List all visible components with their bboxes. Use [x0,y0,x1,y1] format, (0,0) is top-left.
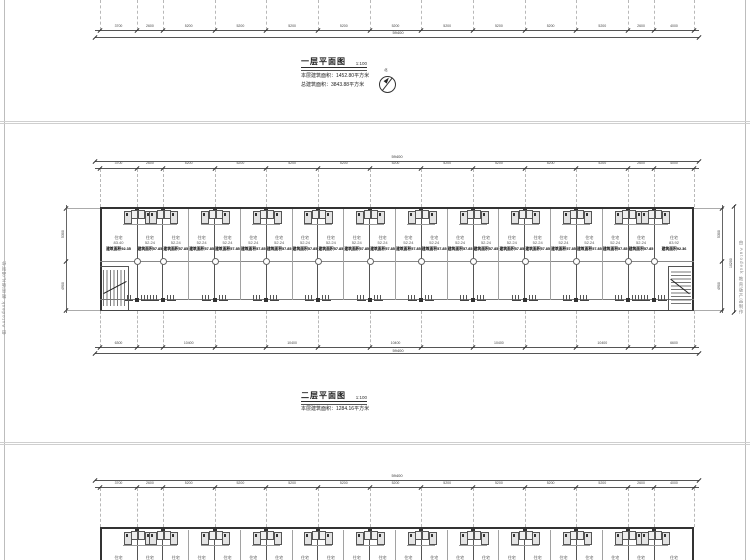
unit-area-label: 52.24 [266,241,292,245]
sink-fixture-icon [519,210,526,219]
dim-tick [697,35,702,40]
dim-text: 59400 [380,155,414,159]
dim-text: 10400 [595,342,609,346]
unit-type-label: 住宅 [602,236,628,240]
unit-type-label: 住宅 [421,236,447,240]
grid-extension-line [473,488,474,527]
sink-fixture-icon [422,210,429,219]
sink-fixture-icon [364,210,371,219]
unit-built-label: 建筑面积57.85 [446,248,474,252]
unit-area-label: 52.24 [292,241,318,245]
sink-fixture-icon [415,531,422,540]
dim-text: 5200 [595,162,609,166]
toilet-tank-mark [203,534,205,537]
dim-ext [66,208,100,209]
door-symbol [219,295,228,301]
unit-built-label: 建筑面积57.85 [627,248,655,252]
unit-area-label: 52.24 [318,241,344,245]
sink-fixture-icon [570,210,577,219]
unit-partition [292,209,293,300]
dim-text: 10400 [182,342,196,346]
grid-extension-line [628,311,629,347]
stair-wall [128,266,129,310]
grid-extension-line [137,0,138,30]
grid-extension-line [525,0,526,30]
dim-text: 10400 [389,342,403,346]
toilet-tank-mark [431,213,433,216]
unit-partition [602,209,603,300]
toilet-tank-mark [462,534,464,537]
column-marker [471,527,475,531]
column-marker [574,527,578,531]
grid-extension-line [318,488,319,527]
grid-extension-line [100,169,101,207]
bathroom-wall [562,545,590,546]
dim-text: 3700 [112,482,126,486]
dim-text: 5200 [285,482,299,486]
column-marker [652,527,656,531]
sink-fixture-icon [138,210,145,219]
unit-partition [498,209,499,300]
unit-type-label: 住宅 [473,236,499,240]
sink-fixture-icon [467,210,474,219]
door-symbol [253,295,262,301]
unit-type-label: 住宅 [576,236,602,240]
dim-text: 5200 [492,482,506,486]
bathroom-wall [407,224,435,225]
grid-extension-line [215,0,216,30]
dim-text: 5200 [337,482,351,486]
unit-type-label: 住宅 [266,556,292,560]
toilet-tank-mark [643,213,645,216]
grid-extension-line [654,488,655,527]
toilet-tank-mark [224,213,226,216]
grid-extension-line [100,488,101,527]
door-symbol [202,295,211,301]
column-circle [573,258,580,265]
sink-fixture-icon [519,531,526,540]
toilet-tank-mark [410,213,412,216]
wall-left [100,207,102,311]
grid-extension-line [421,169,422,207]
sink-fixture-icon [371,531,378,540]
toilet-tank-mark [358,213,360,216]
unit-built-label: 建筑面积57.85 [394,248,422,252]
unit-built-label: 建筑面积57.85 [188,248,216,252]
sink-fixture-icon [655,531,662,540]
dim-text: 2600 [634,162,648,166]
dim-text: 5200 [389,25,403,29]
door-symbol [615,295,624,301]
grid-extension-line [576,488,577,527]
dim-text: 5200 [233,25,247,29]
unit-type-label: 住宅 [602,556,628,560]
door-symbol [641,295,650,301]
sheet1-area-line1: 本层建筑面积：1452.80平方米 [301,74,369,79]
dim-tick [697,478,702,483]
sink-fixture-icon [577,531,584,540]
bathroom-wall [459,224,487,225]
column-circle [470,258,477,265]
column-marker [652,298,656,302]
grid-extension-line [370,169,371,207]
unit-partition [188,209,189,300]
dim-text: 5200 [492,162,506,166]
unit-type-label: 住宅 [395,236,421,240]
dim-text: 5200 [595,25,609,29]
toilet-tank-mark [379,213,381,216]
toilet-tank-mark [306,534,308,537]
toilet-tank-mark [255,534,257,537]
unit-partition [654,209,655,300]
unit-type-label: 住宅 [240,556,266,560]
dim-text: 2600 [634,25,648,29]
wall-right [692,207,694,311]
sink-fixture-icon [622,210,629,219]
unit-built-label: 建筑面积57.85 [343,248,371,252]
unit-type-label: 住宅 [447,236,473,240]
unit-type-label: 住宅 [628,236,654,240]
door-symbol [270,295,279,301]
door-symbol [167,295,176,301]
grid-extension-line [694,0,695,30]
column-circle [625,258,632,265]
grid-extension-line [100,311,101,347]
grid-extension-line [163,488,164,527]
unit-type-label: 住宅 [344,236,370,240]
sheet1-scale: 1:100 [356,62,367,67]
sink-fixture-icon [422,531,429,540]
dim-text: 6600 [667,342,681,346]
column-marker [368,527,372,531]
unit-type-label: 住宅 [214,236,240,240]
bathroom-wall [459,545,487,546]
unit-area-label: 52.24 [370,241,396,245]
grid-extension-line [473,311,474,347]
grid-extension-line [266,169,267,207]
column-marker [626,527,630,531]
sink-fixture-icon [164,531,171,540]
unit-area-label: 52.24 [551,241,577,245]
grid-extension-line [473,0,474,30]
dim-text: 5200 [233,482,247,486]
sink-fixture-icon [157,210,164,219]
column-marker [471,298,475,302]
sheet2-title: 二层平面图 [301,392,346,400]
toilet-tank-mark [255,213,257,216]
column-marker [419,298,423,302]
unit-type-label: 住宅 [189,236,215,240]
column-circle [367,258,374,265]
stair-wall [668,266,692,267]
column-marker [135,527,139,531]
grid-extension-line [266,311,267,347]
toilet-tank-mark [638,534,640,537]
unit-built-label: 建筑面积57.85 [291,248,319,252]
unit-partition [369,209,370,300]
sink-fixture-icon [164,210,171,219]
dim-text: 5200 [182,25,196,29]
sink-fixture-icon [312,210,319,219]
sink-fixture-icon [629,210,636,219]
unit-built-label: 建筑面积57.85 [550,248,578,252]
unit-type-label: 住宅 [551,556,577,560]
unit-type-label: 住宅 [499,556,525,560]
bathroom-wall [201,545,229,546]
dim-text: 5200 [389,162,403,166]
unit-area-label: 52.24 [525,241,551,245]
unit-type-label: 住宅 [551,236,577,240]
column-circle [134,258,141,265]
grid-extension-line [266,488,267,527]
sheet1-title: 一层平面图 [301,58,346,66]
dim-text: 5200 [440,25,454,29]
unit-type-label: 住宅 [370,236,396,240]
dim-line [734,205,735,313]
dim-text: 5200 [544,162,558,166]
toilet-tank-mark [358,534,360,537]
grid-extension-line [654,169,655,207]
dim-line [95,37,699,38]
bathroom-wall [304,545,332,546]
grid-extension-line [576,169,577,207]
column-circle [263,258,270,265]
dim-text: 5200 [285,25,299,29]
unit-built-label: 建筑面积57.85 [136,248,164,252]
unit-built-label: 建筑面积57.85 [472,248,500,252]
grid-extension-line [628,488,629,527]
grid-extension-line [654,0,655,30]
unit-area-label: 52.24 [421,241,447,245]
toilet-tank-mark [147,534,149,537]
toilet-tank-mark [534,213,536,216]
sink-fixture-icon [138,531,145,540]
dim-text: 4900 [62,282,66,290]
sink-fixture-icon [570,531,577,540]
dim-text: 2600 [634,482,648,486]
grid-extension-line [525,488,526,527]
unit-partition [447,209,448,300]
unit-type-label: 住宅 [318,556,344,560]
dim-text: 3700 [112,25,126,29]
grid-extension-line [163,169,164,207]
toilet-tank-mark [276,534,278,537]
unit-area-label: 52.24 [628,241,654,245]
bathroom-wall [640,224,668,225]
dim-text: 5200 [595,482,609,486]
column-circle [651,258,658,265]
sheet2-title-underline [301,404,367,405]
unit-type-label: 住宅 [661,556,687,560]
door-symbol [563,295,572,301]
door-symbol [408,295,417,301]
column-marker [161,527,165,531]
door-symbol [305,295,314,301]
grid-extension-line [215,311,216,347]
sink-fixture-icon [267,210,274,219]
column-circle [160,258,167,265]
unit-partition [576,209,577,300]
unit-type-label: 住宅 [189,556,215,560]
sink-fixture-icon [629,531,636,540]
bathroom-wall [149,545,177,546]
unit-built-label: 建筑面积92.35 [105,248,133,252]
unit-built-label: 建筑面积57.85 [575,248,603,252]
door-symbol [357,295,366,301]
bathroom-wall [201,224,229,225]
unit-built-label: 建筑面积57.85 [317,248,345,252]
dim-text: 5200 [492,25,506,29]
toilet-tank-mark [224,534,226,537]
unit-partition [550,209,551,300]
dim-text: 5200 [389,482,403,486]
dim-text: 6300 [112,342,126,346]
dim-line [95,353,699,354]
toilet-tank-mark [483,534,485,537]
bathroom-wall [149,224,177,225]
column-marker [264,527,268,531]
unit-partition [162,209,163,300]
unit-partition [395,209,396,300]
dim-text: 2600 [143,25,157,29]
unit-area-label: 83.40 [106,241,132,245]
unit-type-label: 住宅 [240,236,266,240]
door-symbol [150,295,159,301]
unit-built-label: 建筑面积57.85 [498,248,526,252]
grid-extension-line [137,488,138,527]
column-marker [523,527,527,531]
toilet-tank-mark [327,213,329,216]
sink-fixture-icon [371,210,378,219]
grid-extension-line [163,0,164,30]
sink-fixture-icon [267,531,274,540]
unit-type-label: 住宅 [525,236,551,240]
plan-drawing-layer: 3700260052005200520052005200520052005200… [0,0,750,560]
unit-built-label: 建筑面积57.85 [265,248,293,252]
grid-extension-line [421,0,422,30]
unit-partition [240,209,241,300]
unit-type-label: 住宅 [163,236,189,240]
stair-wall [100,266,128,267]
column-marker [626,298,630,302]
grid-extension-line [137,311,138,347]
column-circle [315,258,322,265]
unit-built-label: 建筑面积57.85 [162,248,190,252]
dim-text: 5200 [337,25,351,29]
sink-fixture-icon [216,210,223,219]
sheet2-area-line1: 本层建筑面积：1284.16平方米 [301,407,369,412]
sink-fixture-icon [577,210,584,219]
unit-area-label: 52.24 [602,241,628,245]
door-symbol [460,295,469,301]
unit-type-label: 住宅 [473,556,499,560]
stair-wall [668,266,669,310]
sink-fixture-icon [467,531,474,540]
grid-extension-line [421,311,422,347]
sink-fixture-icon [260,531,267,540]
toilet-tank-mark [151,213,153,216]
unit-type-label: 住宅 [266,236,292,240]
sink-fixture-icon [260,210,267,219]
unit-area-label: 52.24 [473,241,499,245]
unit-partition [343,209,344,300]
unit-area-label: 52.24 [214,241,240,245]
unit-built-label: 建筑面积92.36 [660,248,688,252]
grid-extension-line [421,488,422,527]
unit-area-label: 52.24 [240,241,266,245]
toilet-tank-mark [151,534,153,537]
unit-built-label: 建筑面积57.85 [239,248,267,252]
dim-text: 59400 [380,474,414,478]
dim-text: 5200 [440,482,454,486]
dim-text: 5200 [182,162,196,166]
sink-fixture-icon [364,531,371,540]
wall-top [100,527,694,529]
grid-extension-line [266,0,267,30]
bathroom-wall [123,545,151,546]
sheet2-title-block: 二层平面图 1:100 [301,390,367,402]
toilet-tank-mark [276,213,278,216]
column-marker [161,298,165,302]
sink-fixture-icon [131,531,138,540]
bathroom-wall [562,224,590,225]
unit-area-label: 52.24 [344,241,370,245]
bathroom-wall [511,224,539,225]
column-marker [135,298,139,302]
unit-area-label: 52.24 [137,241,163,245]
dim-tick [697,351,702,356]
dim-text: 10400 [492,342,506,346]
grid-extension-line [694,488,695,527]
grid-extension-line [318,0,319,30]
toilet-tank-mark [379,534,381,537]
grid-extension-line [654,311,655,347]
unit-type-label: 住宅 [163,556,189,560]
toilet-tank-mark [586,534,588,537]
unit-partition [473,209,474,300]
grid-extension-line [576,311,577,347]
toilet-tank-mark [586,213,588,216]
toilet-tank-mark [172,534,174,537]
sink-fixture-icon [209,531,216,540]
toilet-tank-mark [306,213,308,216]
sink-fixture-icon [526,531,533,540]
column-circle [418,258,425,265]
unit-type-label: 住宅 [214,556,240,560]
sink-fixture-icon [622,531,629,540]
column-circle [522,258,529,265]
bathroom-wall [252,545,280,546]
unit-area-label: 52.24 [189,241,215,245]
unit-partition [137,209,138,300]
sink-fixture-icon [319,210,326,219]
dim-text: 10400 [285,342,299,346]
bathroom-wall [614,545,642,546]
unit-built-label: 建筑面积57.85 [601,248,629,252]
toilet-tank-mark [126,213,128,216]
unit-area-label: 52.24 [447,241,473,245]
column-marker [316,298,320,302]
north-label: 北 [384,69,388,73]
sink-fixture-icon [474,531,481,540]
unit-type-label: 住宅 [447,556,473,560]
dim-text: 2600 [143,162,157,166]
grid-extension-line [694,169,695,207]
dim-text: 5200 [544,482,558,486]
grid-extension-line [525,311,526,347]
dim-text: 59400 [380,31,416,35]
sink-fixture-icon [131,210,138,219]
